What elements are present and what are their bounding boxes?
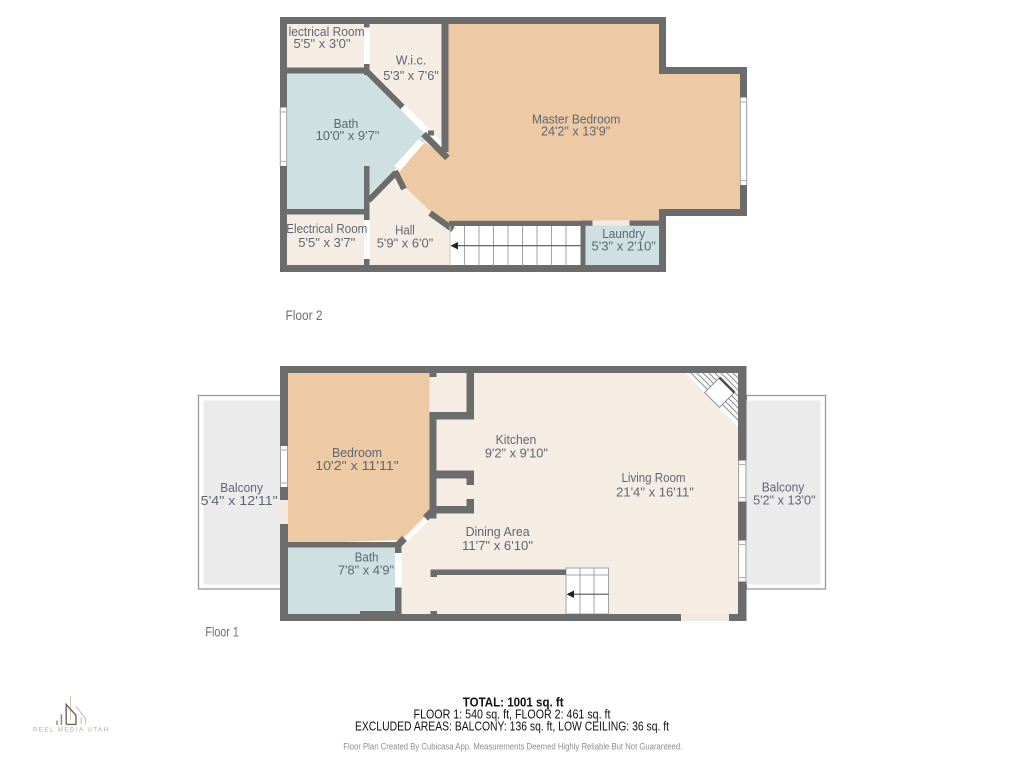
svg-text:24'2" x 13'9": 24'2" x 13'9" (541, 123, 611, 138)
svg-text:Dining Area: Dining Area (466, 524, 531, 539)
svg-text:9'2" x 9'10": 9'2" x 9'10" (485, 445, 548, 460)
svg-text:5'5" x 3'0": 5'5" x 3'0" (294, 36, 351, 51)
svg-text:Living Room: Living Room (622, 470, 686, 485)
svg-text:Floor 1: Floor 1 (205, 625, 238, 640)
svg-text:5'9" x 6'0": 5'9" x 6'0" (377, 236, 434, 251)
svg-text:7'8" x 4'9": 7'8" x 4'9" (338, 563, 395, 578)
svg-text:Floor Plan Created By Cubicasa: Floor Plan Created By Cubicasa App. Meas… (343, 741, 682, 751)
svg-text:REEL MEDIA UTAH: REEL MEDIA UTAH (33, 727, 108, 734)
svg-text:11'7" x 6'10": 11'7" x 6'10" (462, 538, 533, 553)
svg-text:21'4" x 16'11": 21'4" x 16'11" (616, 485, 694, 500)
svg-text:5'3" x 7'6": 5'3" x 7'6" (383, 68, 439, 83)
svg-text:5'5" x 3'7": 5'5" x 3'7" (298, 235, 355, 250)
svg-text:Electrical Room: Electrical Room (286, 221, 367, 236)
svg-text:5'4" x 12'11": 5'4" x 12'11" (201, 493, 279, 508)
svg-text:5'2" x 13'0": 5'2" x 13'0" (753, 493, 816, 508)
svg-text:Floor 2: Floor 2 (286, 308, 323, 323)
svg-text:5'3" x 2'10": 5'3" x 2'10" (592, 239, 657, 254)
svg-text:EXCLUDED AREAS: BALCONY: 136 s: EXCLUDED AREAS: BALCONY: 136 sq. ft, LOW… (355, 720, 670, 734)
svg-text:10'0" x 9'7": 10'0" x 9'7" (316, 128, 380, 143)
svg-text:W.i.c.: W.i.c. (396, 53, 427, 68)
svg-text:10'2" x 11'11": 10'2" x 11'11" (315, 458, 399, 473)
